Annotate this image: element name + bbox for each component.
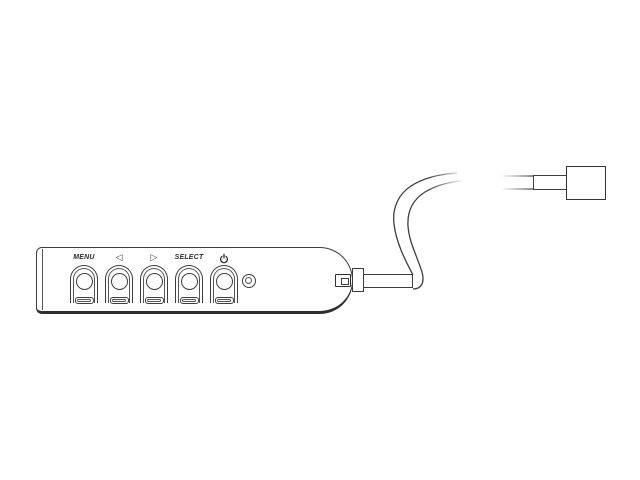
figure-canvas: MENU ◁ ▷ SELECT bbox=[0, 0, 640, 480]
connector-neck bbox=[533, 175, 567, 190]
connector-plug bbox=[566, 166, 606, 200]
cable-edge-inner bbox=[408, 181, 461, 289]
cable-edge-outer bbox=[394, 173, 457, 275]
cable bbox=[0, 0, 640, 480]
strain-relief bbox=[352, 268, 364, 292]
cable-sleeve bbox=[363, 274, 413, 288]
